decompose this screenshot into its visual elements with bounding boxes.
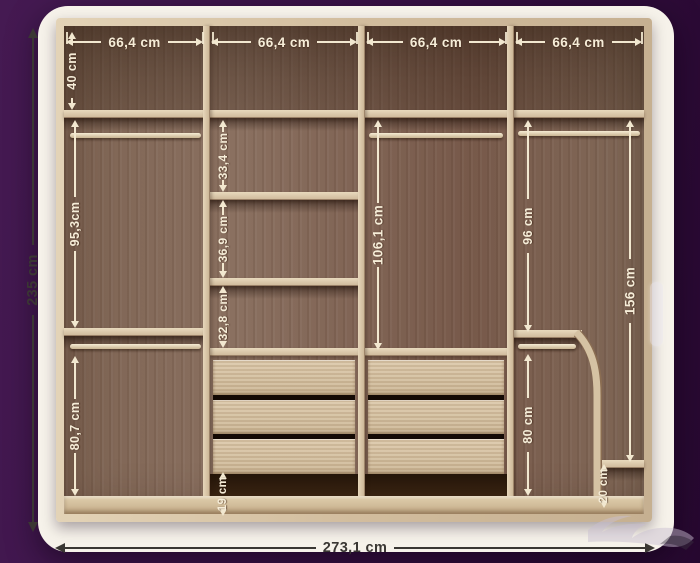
dim-top-width-4: 66,4 cm xyxy=(515,34,642,50)
dim-top-row-height: 40 cm xyxy=(64,32,80,110)
drawer xyxy=(368,400,504,435)
shelf-shadow xyxy=(64,118,644,131)
dim-total-height: 235 cm xyxy=(25,28,41,532)
hanging-rod xyxy=(518,344,576,349)
shelf xyxy=(365,348,507,356)
dim-top-width-1: 66,4 cm xyxy=(66,34,203,50)
top-shelf xyxy=(64,110,644,118)
shelf-shadow xyxy=(210,286,358,299)
hanging-rod xyxy=(70,344,201,349)
dim-total-width: 273,1 cm xyxy=(55,540,655,556)
dim-top-width-3: 66,4 cm xyxy=(366,34,506,50)
dim-shelf-gap-2: 36,9 cm xyxy=(215,200,231,278)
dim-right-lower: 80 cm xyxy=(520,354,536,496)
drawer-stack xyxy=(213,360,355,474)
floor-panel xyxy=(64,496,644,514)
drawer xyxy=(213,400,355,435)
drawer xyxy=(213,360,355,395)
divider-panel xyxy=(358,26,365,496)
dim-right-tall: 156 cm xyxy=(622,120,638,462)
drawer-base-gap xyxy=(365,474,507,498)
divider-panel xyxy=(507,26,514,496)
hanging-rod xyxy=(369,133,503,138)
watermark-strip xyxy=(650,282,663,346)
dim-top-width-2: 66,4 cm xyxy=(211,34,357,50)
shelf xyxy=(210,348,358,356)
shelf xyxy=(210,192,358,200)
dim-center-hanging: 106,1 cm xyxy=(370,120,386,350)
divider-panel xyxy=(203,26,210,496)
drawer xyxy=(213,439,355,474)
drawer-stack xyxy=(368,360,504,474)
shelf xyxy=(210,278,358,286)
dim-base-gap: 19 cm xyxy=(215,472,231,502)
dim-left-upper: 95,3cm xyxy=(67,120,83,328)
dim-shelf-gap-1: 33,4 cm xyxy=(215,120,231,192)
wardrobe-dimensions-diagram: 66,4 cm 66,4 cm 66,4 cm 66,4 cm 40 cm 95… xyxy=(0,0,700,563)
drawer xyxy=(368,439,504,474)
dim-right-upper: 96 cm xyxy=(520,120,536,332)
dim-right-base-shelf: 20 cm xyxy=(596,464,612,498)
dim-left-lower: 80,7 cm xyxy=(67,356,83,496)
hanging-rod xyxy=(70,133,201,138)
shelf-shadow xyxy=(210,200,358,213)
dim-shelf-gap-3: 32,8 cm xyxy=(215,286,231,348)
drawer xyxy=(368,360,504,395)
shelf xyxy=(64,328,203,336)
watermark-logo xyxy=(582,496,700,554)
drawer-base-gap xyxy=(210,474,358,498)
